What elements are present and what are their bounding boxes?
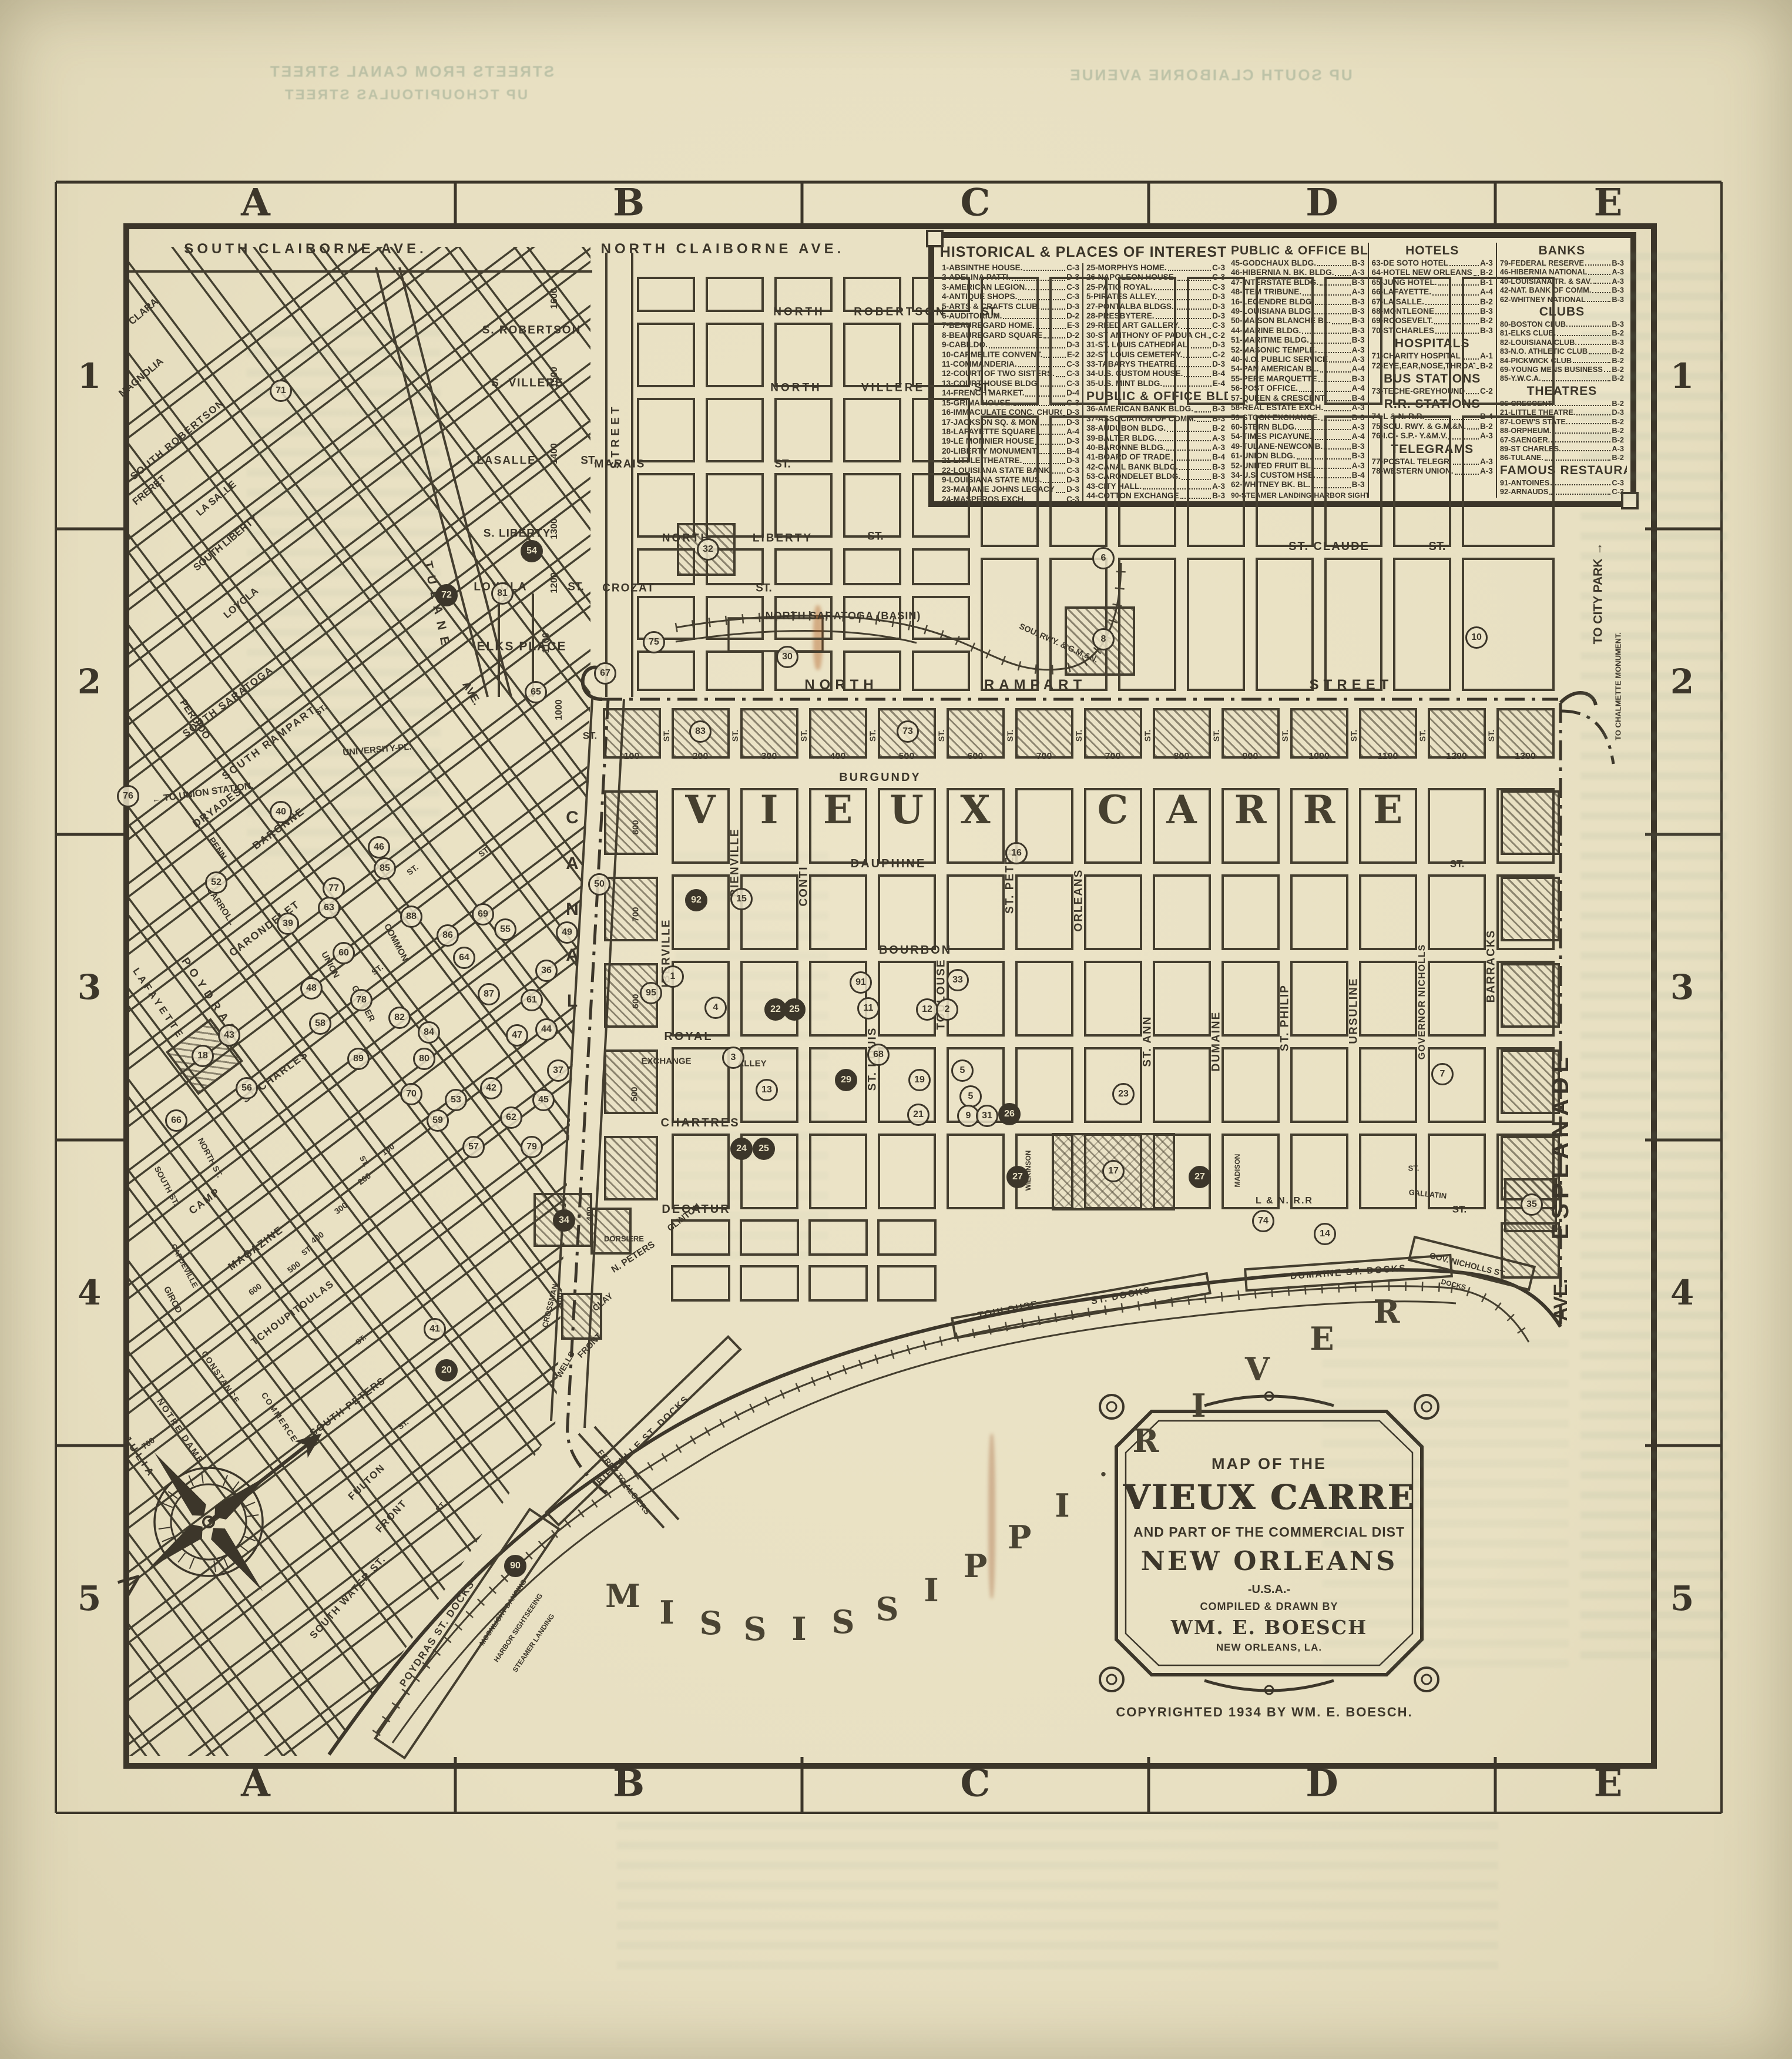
poi-marker: 70 <box>400 1083 422 1105</box>
map-label: S <box>876 1593 899 1625</box>
map-label: R <box>1234 790 1267 829</box>
city-block <box>1015 874 1073 950</box>
map-label: LIBERTY <box>753 533 813 544</box>
city-block <box>740 1219 799 1256</box>
city-block <box>706 650 764 691</box>
poi-marker: 65 <box>525 681 547 703</box>
map-label: ST. <box>981 307 997 318</box>
map-label: DUMAINE <box>1211 1011 1222 1072</box>
map-label: C <box>566 809 579 827</box>
grid-row-number: 4 <box>1670 1273 1694 1313</box>
hatched-block <box>1501 877 1560 941</box>
poi-marker: 37 <box>547 1059 569 1082</box>
poi-marker: 87 <box>478 983 500 1005</box>
city-block <box>1049 415 1108 547</box>
poi-marker: 24 <box>730 1138 753 1160</box>
poi-marker: 79 <box>521 1136 543 1158</box>
map-label: S. ROBERTSON <box>482 325 582 336</box>
legend-entry: 63-DE SOTO HOTELA-3 <box>1372 259 1493 268</box>
city-block <box>1290 874 1348 950</box>
city-block <box>877 1219 937 1256</box>
poi-marker: 80 <box>413 1048 435 1070</box>
map-label: NORTH <box>804 678 878 692</box>
city-block <box>947 1134 1005 1209</box>
city-block <box>637 323 695 387</box>
map-label: MADISON <box>1234 1154 1241 1188</box>
grid-col-letter: B <box>613 181 645 225</box>
map-label: · <box>1099 1463 1108 1487</box>
city-block <box>1462 558 1555 691</box>
poi-marker: 86 <box>437 924 459 947</box>
city-block <box>1256 277 1314 405</box>
legend-entry: 79-FEDERAL RESERVEB-3 <box>1500 259 1624 267</box>
title-city: NEW ORLEANS <box>1116 1545 1422 1577</box>
poi-marker: 5 <box>951 1059 974 1082</box>
map-label: R <box>1303 790 1335 829</box>
city-block <box>1084 961 1142 1037</box>
map-title: VIEUX CARRE <box>1116 1477 1422 1517</box>
map-label: SOUTH CLAIBORNE AVE. <box>184 242 427 256</box>
map-label: CHARTRES <box>660 1117 740 1129</box>
city-block <box>1428 874 1486 950</box>
city-block <box>774 548 833 585</box>
city-block <box>1393 277 1451 405</box>
map-label: S <box>700 1607 723 1639</box>
map-label: 1600 <box>550 288 559 309</box>
grid-col-letter: B <box>613 1762 645 1806</box>
poi-marker: 41 <box>424 1318 446 1340</box>
poi-marker: 74 <box>1252 1210 1274 1232</box>
city-block <box>912 548 970 585</box>
city-block <box>1153 961 1211 1037</box>
map-label: I <box>1055 1490 1069 1521</box>
map-label: 200 <box>693 752 709 762</box>
map-label: 700 <box>1105 752 1121 762</box>
title-line-3: AND PART OF THE COMMERCIAL DIST <box>1116 1524 1422 1540</box>
map-label: 1100 <box>1378 752 1398 762</box>
grid-col-letter: C <box>961 1762 991 1806</box>
city-block <box>843 398 901 462</box>
city-block <box>671 1265 730 1302</box>
grid-row-number: 5 <box>78 1578 101 1618</box>
legend-entry: 25-MORPHYS HOME.C-3 <box>1086 263 1225 273</box>
map-label: ESPLANADE <box>1549 1052 1572 1240</box>
title-line-1: MAP OF THE <box>1116 1455 1422 1473</box>
poi-marker: 5 <box>959 1085 982 1108</box>
map-label: A <box>566 947 579 964</box>
city-block <box>706 277 764 312</box>
map-label: ST. <box>731 730 739 742</box>
map-label: 1000 <box>555 699 564 720</box>
legend-section-header: HOTELS <box>1372 243 1493 259</box>
map-label: I <box>659 1597 674 1628</box>
map-label: V <box>685 790 715 829</box>
city-block <box>1428 788 1486 864</box>
grid-col-letter: A <box>241 1762 270 1806</box>
map-label: EXCHANGE <box>641 1057 691 1066</box>
legend-entry: 45-GODCHAUX BLDG.B-3 <box>1231 259 1365 268</box>
city-block <box>774 473 833 538</box>
grid-row-number: 1 <box>1670 356 1694 396</box>
city-block <box>1187 558 1245 691</box>
poi-marker: 34 <box>553 1209 575 1232</box>
city-block <box>1359 1047 1417 1123</box>
poi-marker: 42 <box>480 1077 502 1099</box>
map-label: STREET <box>1310 678 1394 692</box>
poi-marker: 12 <box>916 998 938 1021</box>
map-label: ROBERTSON <box>854 307 946 318</box>
map-label: ST. <box>1143 730 1152 742</box>
city-block <box>808 1219 868 1256</box>
legend-section-header: BANKS <box>1500 243 1624 259</box>
city-block <box>1428 961 1486 1037</box>
legend-entry: 1-ABSINTHE HOUSE.C-3 <box>942 263 1079 273</box>
poi-marker: 20 <box>435 1359 458 1381</box>
map-label: 900 <box>1243 752 1259 762</box>
poi-marker: 25 <box>783 998 806 1021</box>
map-label: DAUPHINE <box>851 858 926 870</box>
city-block <box>878 874 936 950</box>
grid-col-letter: D <box>1306 1762 1338 1806</box>
map-label: ST. <box>1350 730 1358 742</box>
poi-marker: 6 <box>1092 547 1115 569</box>
grid-row-number: 4 <box>78 1273 101 1313</box>
poi-marker: 11 <box>857 997 880 1020</box>
map-label: ROYAL <box>664 1031 713 1042</box>
city-block <box>774 323 833 387</box>
city-block <box>1256 558 1314 691</box>
poi-marker: 76 <box>117 785 139 807</box>
map-label: A <box>1166 790 1196 829</box>
grid-row-number: 1 <box>78 356 101 396</box>
poi-marker: 23 <box>1112 1083 1135 1105</box>
poi-marker: 19 <box>908 1069 931 1091</box>
grid-col-letter: C <box>961 181 991 225</box>
poi-marker: 53 <box>445 1089 467 1111</box>
map-label: ST. <box>800 730 808 742</box>
map-label: R <box>1133 1425 1159 1457</box>
map-label: 1300 <box>1515 752 1536 762</box>
city-block <box>877 1265 937 1302</box>
title-usa: -U.S.A.- <box>1116 1583 1422 1597</box>
city-block <box>1393 558 1451 691</box>
city-block <box>878 1134 936 1209</box>
city-block <box>809 1134 867 1209</box>
poi-marker: 95 <box>640 982 662 1004</box>
poi-marker: 72 <box>435 584 458 606</box>
city-block <box>1221 1047 1280 1123</box>
ghost-text-2: UP TCHOUPITOULAS STREET <box>283 87 528 103</box>
poi-marker: 67 <box>594 662 616 685</box>
legend-entry: 36-AMERICAN BANK BLDG.B-3 <box>1086 404 1225 414</box>
poi-marker: 14 <box>1314 1223 1336 1245</box>
poi-marker: 52 <box>205 871 227 894</box>
city-block <box>706 596 764 640</box>
map-label: 1400 <box>550 443 559 464</box>
city-block <box>637 398 695 462</box>
poi-marker: 88 <box>400 906 422 928</box>
map-label: I <box>1191 1390 1206 1421</box>
city-block <box>1187 277 1245 405</box>
poi-marker: 90 <box>504 1555 526 1577</box>
map-label: I <box>924 1574 938 1606</box>
grid-row-number: 3 <box>78 967 101 1007</box>
city-block <box>843 473 901 538</box>
map-label: C <box>1098 790 1129 829</box>
map-label: 700 <box>1036 752 1052 762</box>
map-label: RAMPART <box>984 678 1086 692</box>
poi-marker: 75 <box>643 631 665 653</box>
city-block <box>912 473 970 538</box>
map-label: 1100 <box>542 633 551 653</box>
map-label: M <box>605 1580 640 1612</box>
city-block <box>809 874 867 950</box>
poi-marker: 10 <box>1465 626 1488 649</box>
hatched-block <box>604 1136 658 1200</box>
poi-marker: 16 <box>1005 842 1028 864</box>
poi-marker: 57 <box>462 1136 485 1158</box>
map-label: AVE. <box>1551 1279 1570 1321</box>
map-label: DORSIERE <box>604 1235 644 1243</box>
map-label: 1300 <box>550 518 559 539</box>
poi-marker: 32 <box>697 538 719 561</box>
map-label: NORTH SARATOGA (BASIN) <box>766 611 921 621</box>
poi-marker: 59 <box>427 1109 449 1132</box>
grid-row-number: 3 <box>1670 967 1694 1007</box>
poi-marker: 44 <box>535 1018 558 1041</box>
city-block <box>740 874 798 950</box>
city-block <box>1462 277 1555 405</box>
city-block <box>1290 1047 1348 1123</box>
map-label: ST. <box>1408 1165 1419 1172</box>
city-block <box>1324 558 1382 691</box>
ghost-text-1: STREETS FROM CANAL STREET <box>269 63 554 81</box>
city-block <box>912 323 970 387</box>
city-block <box>740 1265 799 1302</box>
city-block <box>1153 874 1211 950</box>
map-label: GOVERNOR NICHOLLS <box>1418 944 1427 1060</box>
map-label: ST. <box>1212 730 1220 742</box>
poi-marker: 15 <box>730 888 753 910</box>
map-label: ST. <box>1075 730 1083 742</box>
map-label: S <box>744 1613 767 1645</box>
map-label: 1500 <box>550 367 559 388</box>
ghost-text-3: UP SOUTH CLAIBORNE AVENUE <box>1068 66 1352 85</box>
city-block <box>947 874 1005 950</box>
map-label: ST. <box>868 730 877 742</box>
city-block <box>843 548 901 585</box>
city-block <box>1324 277 1382 405</box>
city-block <box>1118 415 1176 547</box>
poi-marker: 33 <box>947 969 969 991</box>
map-label: VILLERE <box>861 383 925 394</box>
poi-marker: 91 <box>850 971 872 994</box>
map-label: U <box>890 790 924 829</box>
map-label: 800 <box>1174 752 1190 762</box>
map-label: 1000 <box>1308 752 1330 762</box>
poi-marker: 64 <box>453 947 475 969</box>
poi-marker: 78 <box>350 989 373 1011</box>
map-label: P <box>964 1550 988 1582</box>
map-label: ST. <box>937 730 945 742</box>
title-cartouche: MAP OF THE VIEUX CARRE AND PART OF THE C… <box>1116 1411 1422 1675</box>
map-label: ST. <box>568 582 583 593</box>
map-label: 1200 <box>1446 752 1467 762</box>
city-block <box>637 277 695 312</box>
city-block <box>672 1134 730 1209</box>
map-label: ST. <box>774 459 790 470</box>
poi-marker: 2 <box>936 998 958 1021</box>
poi-marker: 58 <box>309 1012 331 1035</box>
city-block <box>1393 415 1451 547</box>
map-label: ELKS PLACE <box>476 640 566 653</box>
city-block <box>912 650 970 691</box>
map-label: 100 <box>624 752 640 762</box>
map-label: E <box>1373 790 1402 829</box>
legend-header-historical: HISTORICAL & PLACES OF INTEREST <box>939 243 1228 263</box>
city-block <box>1462 415 1555 547</box>
map-label: S. LIBERTY <box>484 528 551 539</box>
paper-stain <box>988 1434 995 1598</box>
map-label: ST. <box>1418 730 1427 742</box>
city-block <box>637 650 695 691</box>
city-block <box>1084 1047 1142 1123</box>
poi-marker: 77 <box>323 877 345 900</box>
poi-marker: 8 <box>1092 628 1115 650</box>
map-label: ST. ANN <box>1142 1015 1153 1067</box>
city-block <box>1359 874 1417 950</box>
map-label: ST. <box>867 531 883 542</box>
city-block <box>1118 277 1176 405</box>
poi-marker: 92 <box>685 889 707 911</box>
city-block <box>1221 961 1280 1037</box>
city-block <box>1221 874 1280 950</box>
map-label: 1200 <box>550 572 559 593</box>
map-label: ST. <box>583 731 598 741</box>
grid-col-letter: D <box>1306 181 1338 225</box>
poi-marker: 17 <box>1102 1160 1125 1182</box>
title-author-city: NEW ORLEANS, LA. <box>1116 1642 1422 1654</box>
poi-marker: 69 <box>472 903 494 925</box>
hatched-block <box>590 1208 632 1255</box>
poi-marker: 40 <box>270 801 292 823</box>
poi-marker: 62 <box>500 1106 522 1129</box>
poi-marker: 29 <box>835 1069 857 1091</box>
city-block <box>1359 961 1417 1037</box>
poi-marker: 26 <box>998 1103 1021 1125</box>
poi-marker: 82 <box>388 1007 411 1029</box>
map-label: ST. <box>1281 730 1289 742</box>
map-label: 600 <box>632 994 640 1008</box>
poi-marker: 1 <box>662 965 684 988</box>
map-label: CONTI <box>798 866 810 906</box>
legend-header-public: PUBLIC & OFFICE BL. <box>1231 243 1365 259</box>
grid-col-letter: E <box>1594 181 1623 225</box>
poi-marker: 39 <box>277 913 299 935</box>
city-block <box>1428 1047 1486 1123</box>
map-label: BARRACKS <box>1486 930 1497 1003</box>
map-label: TO CITY PARK → <box>1592 543 1605 645</box>
poi-marker: 84 <box>418 1021 440 1044</box>
map-label: CROZAT <box>602 583 655 594</box>
poi-marker: 30 <box>776 646 798 668</box>
map-label: 700 <box>632 907 640 921</box>
hatched-block <box>1501 963 1560 1028</box>
city-block <box>1324 415 1382 547</box>
city-block <box>1187 415 1245 547</box>
map-label: 400 <box>586 1206 595 1221</box>
map-label: P <box>1008 1521 1032 1553</box>
map-label: BIENVILLE <box>730 828 741 897</box>
poi-marker: 73 <box>897 720 919 743</box>
map-label: ST. <box>1429 541 1446 552</box>
poi-marker: 81 <box>491 582 514 605</box>
grid-row-number: 5 <box>1670 1578 1694 1618</box>
map-label: BOURBON <box>879 944 952 956</box>
grid-col-letter: E <box>1594 1762 1623 1806</box>
poi-marker: 63 <box>318 897 340 919</box>
map-label: E <box>1310 1323 1334 1354</box>
hatched-block <box>1501 790 1560 855</box>
poi-marker: 47 <box>506 1024 528 1047</box>
map-label: 300 <box>556 1292 565 1307</box>
map-label: N <box>566 901 579 918</box>
poi-marker: 83 <box>689 720 712 743</box>
city-block <box>843 323 901 387</box>
city-block <box>1256 415 1314 547</box>
poi-marker: 68 <box>867 1044 890 1066</box>
map-label: URSULINE <box>1348 977 1360 1044</box>
city-block <box>672 874 730 950</box>
map-label: NORTH <box>773 307 825 318</box>
map-label: NORTH <box>770 383 822 394</box>
poi-marker: 85 <box>374 857 396 880</box>
poi-marker: 66 <box>165 1109 187 1132</box>
grid-col-letter: A <box>241 181 270 225</box>
city-block <box>1290 961 1348 1037</box>
map-label: ST. PHILIP <box>1280 984 1291 1051</box>
map-label: NORTH CLAIBORNE AVE. <box>601 242 845 256</box>
map-label: BURGUNDY <box>839 772 921 783</box>
city-block <box>774 398 833 462</box>
poi-marker: 55 <box>494 918 516 941</box>
poi-marker: 56 <box>236 1077 258 1099</box>
map-label: L <box>567 992 578 1010</box>
map-label: S <box>832 1606 855 1638</box>
city-block <box>1153 1047 1211 1123</box>
map-label: ST. <box>662 730 670 742</box>
title-compiled-by: COMPILED & DRAWN BY <box>1116 1601 1422 1613</box>
poi-marker: 35 <box>1521 1193 1543 1216</box>
map-label: ST. <box>1452 1205 1467 1215</box>
poi-marker: 54 <box>521 540 543 562</box>
city-block <box>1015 961 1073 1037</box>
map-label: LASALLE <box>476 455 536 467</box>
poi-marker: 43 <box>218 1024 240 1047</box>
map-label: ST. <box>1450 859 1465 869</box>
poi-marker: 61 <box>521 989 543 1011</box>
map-label: R <box>1374 1296 1400 1327</box>
map-label: STREET <box>610 404 622 469</box>
title-author: WM. E. BOESCH <box>1116 1616 1422 1639</box>
map-label: ST. <box>756 583 771 594</box>
city-block <box>706 398 764 462</box>
map-label: E <box>823 790 853 829</box>
poi-marker: 46 <box>368 836 390 859</box>
map-label: A <box>566 855 579 873</box>
poi-marker: 48 <box>300 977 323 1000</box>
map-label: L & N. R.R <box>1256 1196 1313 1206</box>
